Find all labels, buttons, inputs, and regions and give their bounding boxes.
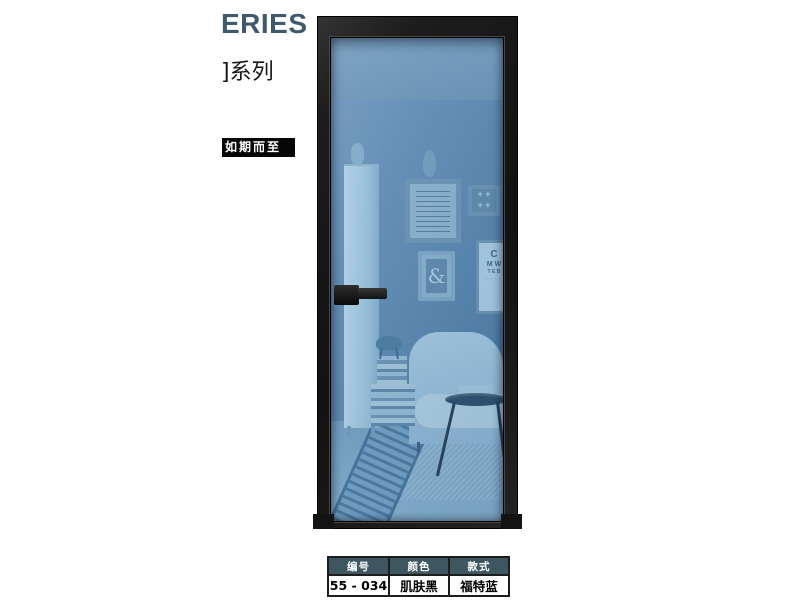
door-handle-base	[334, 285, 359, 305]
door-foot	[501, 514, 522, 529]
spec-table: 编号 颜色 款式 55 - 034 肌肤黑 福特蓝	[327, 556, 510, 597]
spec-header-color: 颜色	[390, 558, 448, 574]
series-title: ERIES	[221, 8, 308, 40]
spec-header-number: 编号	[329, 558, 388, 574]
door-glass-panel: + + + + & C M W T E B · · · ·	[331, 38, 503, 521]
door-product-image: + + + + & C M W T E B · · · ·	[317, 16, 518, 529]
spec-value-color: 肌肤黑	[390, 576, 448, 595]
tagline-badge: 如期而至	[222, 138, 295, 157]
door-foot	[313, 514, 334, 529]
spec-value-number: 55 - 034	[329, 576, 388, 595]
spec-value-style: 福特蓝	[450, 576, 508, 595]
series-subtitle: ]系列	[221, 54, 274, 86]
glass-inner-shadow	[331, 38, 503, 521]
spec-header-style: 款式	[450, 558, 508, 574]
door-handle-lever	[358, 288, 387, 299]
product-poster: ERIES ]系列 如期而至 + + + + & C	[0, 0, 800, 600]
